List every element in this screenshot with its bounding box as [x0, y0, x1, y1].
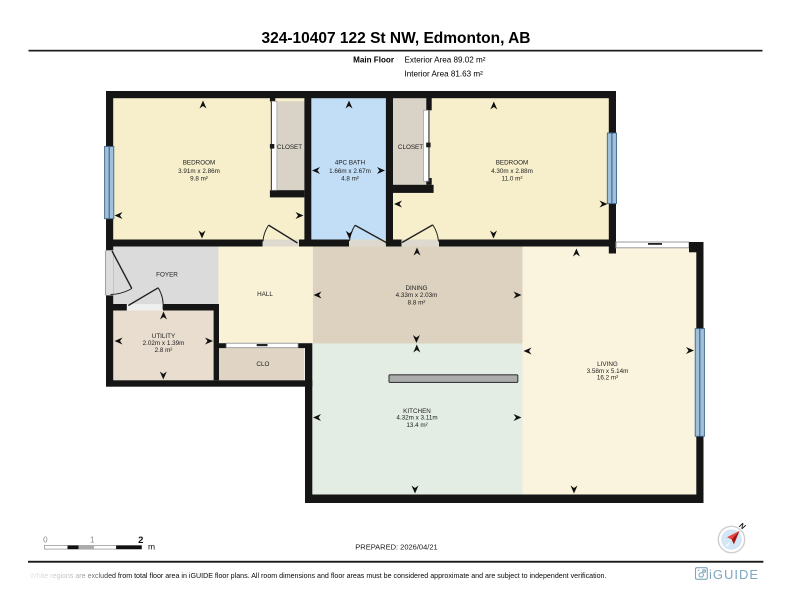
svg-text:UTILITY: UTILITY: [152, 333, 176, 340]
svg-text:m: m: [148, 542, 155, 552]
svg-text:3.91m x 2.86m: 3.91m x 2.86m: [178, 168, 220, 175]
svg-text:4.8 m²: 4.8 m²: [341, 175, 359, 182]
svg-text:Main Floor: Main Floor: [353, 56, 395, 65]
svg-text:4.32m x 3.11m: 4.32m x 3.11m: [396, 415, 437, 422]
svg-text:0: 0: [43, 536, 48, 545]
svg-text:1.66m x 2.67m: 1.66m x 2.67m: [329, 168, 371, 175]
svg-text:DINING: DINING: [405, 285, 427, 292]
svg-text:CLO: CLO: [256, 361, 269, 368]
svg-text:CLOSET: CLOSET: [398, 144, 423, 151]
svg-text:iGUIDE: iGUIDE: [709, 567, 759, 582]
svg-text:2: 2: [138, 535, 143, 546]
svg-text:4.33m x 2.03m: 4.33m x 2.03m: [396, 292, 438, 299]
svg-text:8.8 m²: 8.8 m²: [408, 299, 426, 306]
svg-text:PREPARED: 2026/04/21: PREPARED: 2026/04/21: [355, 543, 437, 552]
svg-text:FOYER: FOYER: [156, 272, 178, 279]
svg-text:4.30m x 2.88m: 4.30m x 2.88m: [491, 168, 533, 175]
svg-text:Exterior Area 89.02 m²: Exterior Area 89.02 m²: [405, 56, 486, 65]
svg-text:16.2 m²: 16.2 m²: [597, 375, 618, 382]
svg-text:1: 1: [90, 536, 95, 545]
svg-text:9.8 m²: 9.8 m²: [190, 175, 208, 182]
svg-text:13.4 m²: 13.4 m²: [406, 422, 427, 429]
svg-text:White regions are excluded fro: White regions are excluded from total fl…: [30, 572, 607, 580]
svg-text:BEDROOM: BEDROOM: [183, 160, 216, 167]
svg-text:LIVING: LIVING: [597, 361, 618, 368]
svg-text:2.02m x 1.39m: 2.02m x 1.39m: [143, 340, 185, 347]
svg-text:11.0 m²: 11.0 m²: [502, 175, 523, 182]
svg-text:2.8 m²: 2.8 m²: [155, 347, 173, 354]
svg-text:Interior Area 81.63 m²: Interior Area 81.63 m²: [405, 70, 484, 79]
svg-text:CLOSET: CLOSET: [277, 144, 302, 151]
svg-text:324-10407 122 St NW, Edmonton,: 324-10407 122 St NW, Edmonton, AB: [261, 30, 530, 47]
svg-text:HALL: HALL: [257, 291, 273, 298]
svg-text:4PC BATH: 4PC BATH: [335, 160, 366, 167]
svg-text:BEDROOM: BEDROOM: [496, 160, 529, 167]
